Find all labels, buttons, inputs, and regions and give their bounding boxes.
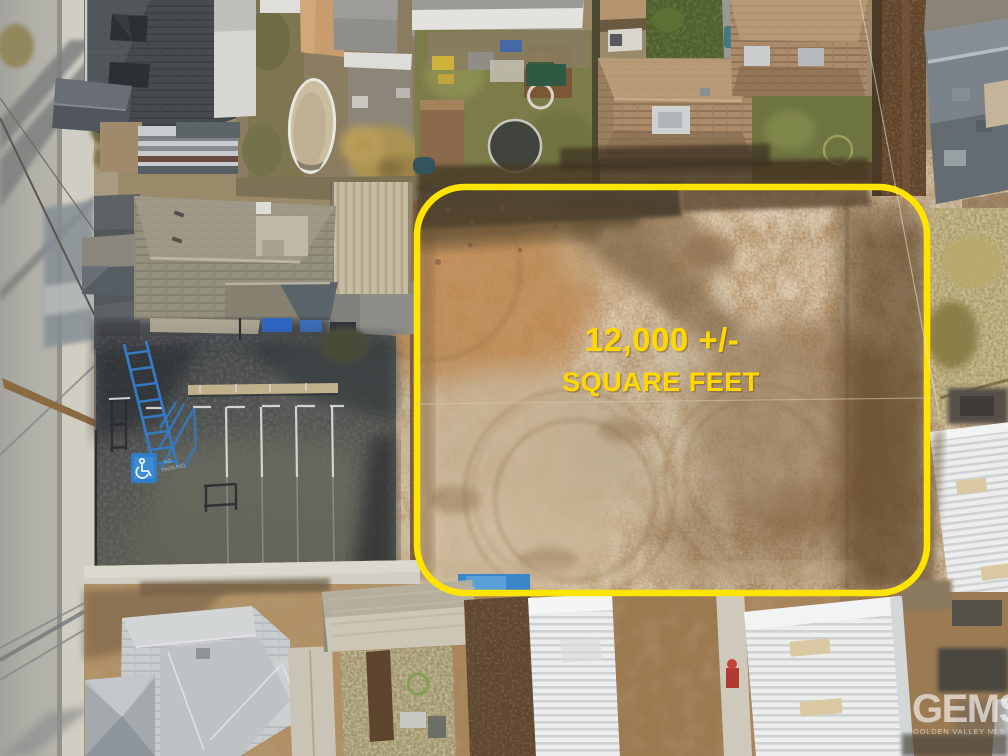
svg-text:GEMS: GEMS — [912, 687, 1008, 731]
svg-text:GOLDEN VALLEY MLS: GOLDEN VALLEY MLS — [913, 727, 1006, 736]
svg-text:12,000 +/-: 12,000 +/- — [585, 321, 740, 358]
svg-text:SQUARE FEET: SQUARE FEET — [562, 367, 760, 397]
